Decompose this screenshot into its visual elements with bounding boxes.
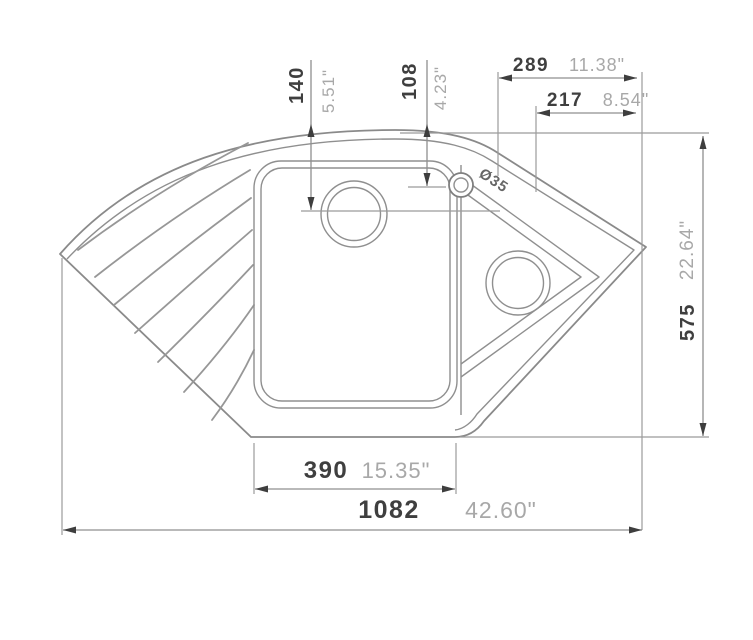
dim-1082-inch-label: 42.60" [465, 497, 537, 523]
dim-575-inch-label: 22.64" [677, 220, 698, 280]
arrowhead [624, 75, 637, 82]
arrowhead [63, 527, 76, 534]
arrowhead [623, 110, 636, 117]
sink-technical-drawing: 289 11.38" 217 8.54" 140 5.51" 108 4.23"… [0, 0, 753, 640]
dim-390-inch-label: 15.35" [362, 458, 431, 483]
arrowhead [255, 486, 268, 493]
technical-drawing-page: 289 11.38" 217 8.54" 140 5.51" 108 4.23"… [0, 0, 753, 640]
dim-108-mm-label: 108 [399, 62, 421, 100]
arrowhead [442, 486, 455, 493]
dim-575-mm-label: 575 [677, 303, 699, 341]
dim-140-mm-label: 140 [286, 66, 308, 104]
dim-140-inch-label: 5.51" [319, 69, 338, 113]
arrowhead [700, 423, 707, 436]
sink-outer-outline [60, 130, 646, 437]
dim-390-mm-label: 390 [304, 457, 349, 484]
dim-1082-mm-label: 1082 [358, 496, 420, 524]
dim-217-inch-label: 8.54" [603, 90, 649, 110]
arrowhead [308, 124, 315, 137]
arrowhead [499, 75, 512, 82]
dim-289-inch-label: 11.38" [569, 55, 625, 75]
dim-289-mm-label: 289 [513, 55, 549, 76]
dim-217-mm-label: 217 [547, 90, 583, 111]
arrowhead [629, 527, 642, 534]
dim-108-inch-label: 4.23" [431, 66, 450, 110]
tap-hole [449, 173, 473, 197]
arrowhead [700, 136, 707, 149]
